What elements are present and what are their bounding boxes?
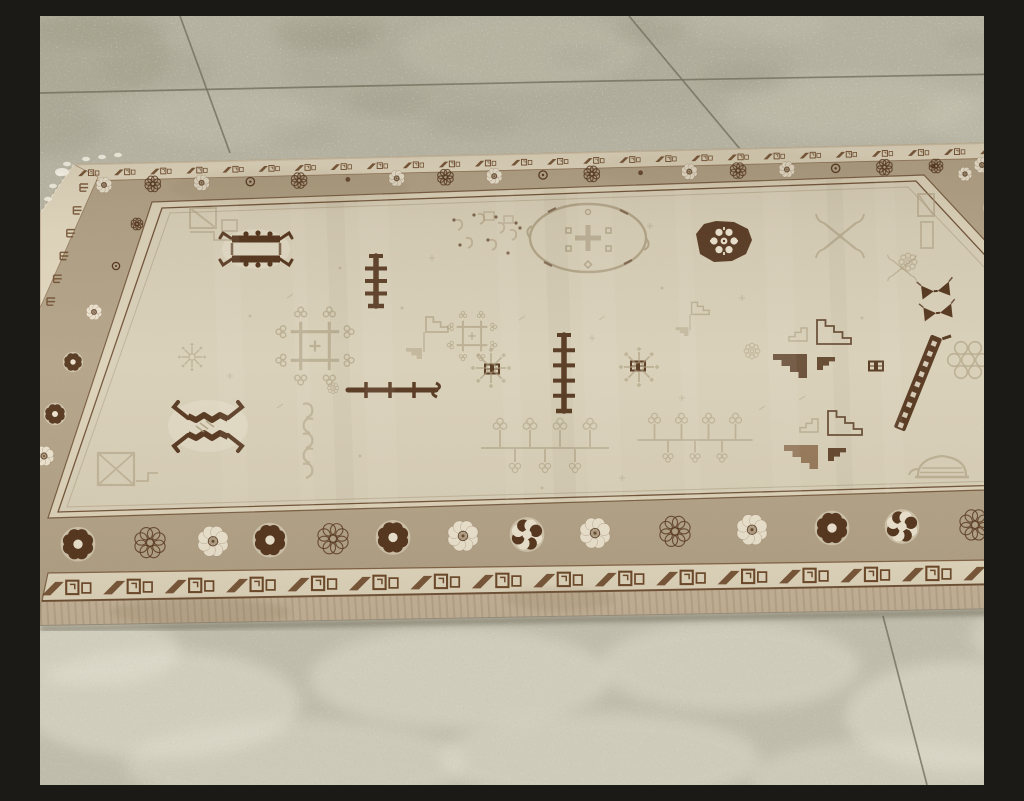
photo-canvas [40, 16, 984, 785]
photo-grain-overlay [40, 16, 984, 785]
rug-photograph: Antique East Turkestan Khotan rug with a… [40, 16, 984, 785]
